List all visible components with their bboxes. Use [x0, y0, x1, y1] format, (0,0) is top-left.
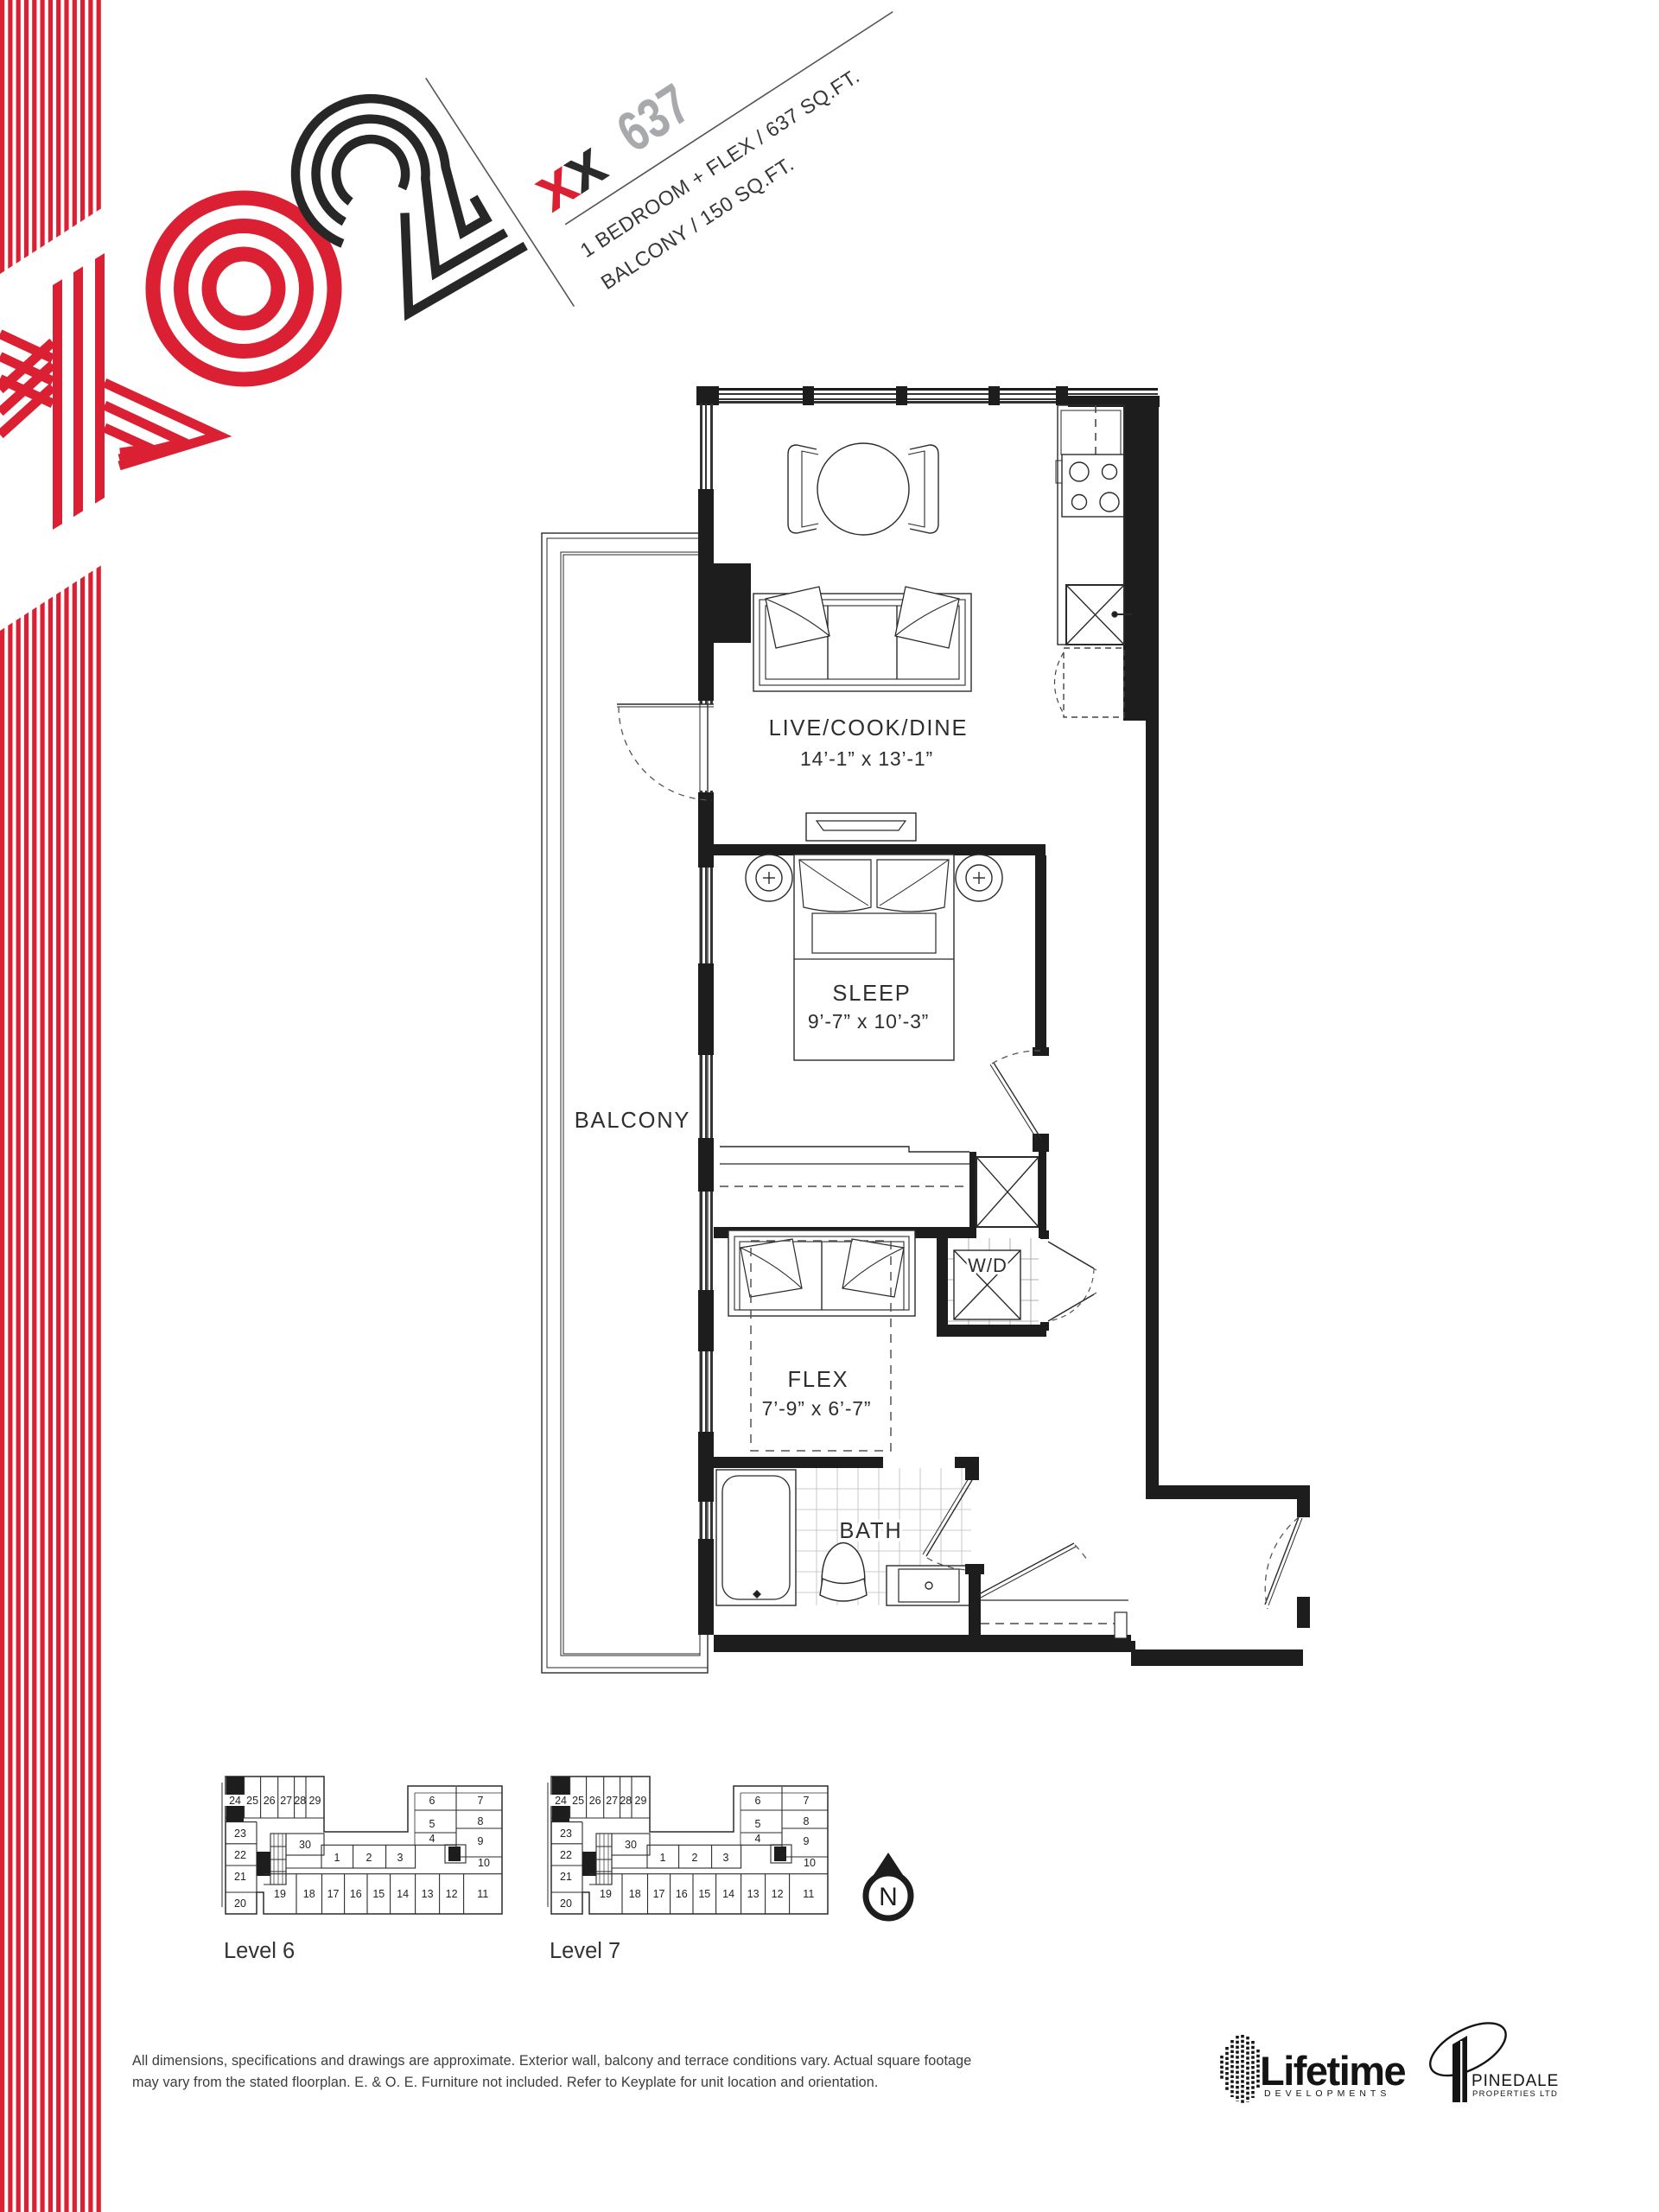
svg-text:30: 30: [299, 1839, 311, 1851]
svg-text:5: 5: [755, 1818, 761, 1830]
svg-text:may vary from the stated floor: may vary from the stated floorplan. E. &…: [132, 2075, 879, 2090]
svg-text:10: 10: [478, 1857, 490, 1869]
svg-text:30: 30: [625, 1839, 637, 1851]
svg-text:13: 13: [422, 1888, 434, 1900]
svg-text:14’-1” x 13’-1”: 14’-1” x 13’-1”: [800, 747, 933, 770]
svg-text:17: 17: [653, 1888, 665, 1900]
svg-text:28: 28: [620, 1795, 632, 1807]
svg-text:9: 9: [804, 1835, 810, 1847]
svg-text:23: 23: [560, 1827, 572, 1840]
svg-text:14: 14: [722, 1888, 734, 1900]
svg-text:21: 21: [234, 1871, 246, 1883]
svg-text:BATH: BATH: [839, 1519, 902, 1543]
svg-text:LIVE/COOK/DINE: LIVE/COOK/DINE: [769, 716, 969, 741]
svg-text:29: 29: [635, 1795, 647, 1807]
svg-text:18: 18: [629, 1888, 641, 1900]
svg-text:3: 3: [397, 1852, 404, 1864]
svg-text:20: 20: [560, 1897, 572, 1910]
svg-text:All dimensions, specifications: All dimensions, specifications and drawi…: [132, 2053, 971, 2069]
svg-text:19: 19: [600, 1888, 612, 1900]
svg-text:PINEDALE: PINEDALE: [1471, 2072, 1559, 2090]
svg-text:28: 28: [294, 1795, 306, 1807]
svg-text:8: 8: [478, 1815, 484, 1827]
svg-text:24: 24: [229, 1795, 241, 1807]
svg-text:25: 25: [572, 1795, 584, 1807]
svg-text:17: 17: [327, 1888, 340, 1900]
svg-text:14: 14: [397, 1888, 409, 1900]
svg-text:2: 2: [692, 1852, 698, 1864]
svg-text:12: 12: [772, 1888, 784, 1900]
svg-text:5: 5: [429, 1818, 435, 1830]
svg-text:N: N: [879, 1883, 898, 1911]
svg-text:9’-7” x 10’-3”: 9’-7” x 10’-3”: [808, 1010, 929, 1033]
svg-text:Level 6: Level 6: [224, 1939, 295, 1963]
svg-text:4: 4: [755, 1833, 761, 1845]
svg-text:SLEEP: SLEEP: [832, 982, 911, 1006]
svg-text:21: 21: [560, 1871, 572, 1883]
svg-text:20: 20: [234, 1897, 246, 1910]
svg-text:4: 4: [429, 1833, 435, 1845]
svg-text:11: 11: [477, 1888, 488, 1900]
svg-text:DEVELOPMENTS: DEVELOPMENTS: [1264, 2088, 1390, 2099]
svg-text:1: 1: [334, 1852, 340, 1864]
svg-text:13: 13: [747, 1888, 760, 1900]
svg-text:26: 26: [264, 1795, 276, 1807]
svg-text:29: 29: [309, 1795, 321, 1807]
svg-text:9: 9: [478, 1835, 484, 1847]
svg-text:7’-9” x 6’-7”: 7’-9” x 6’-7”: [762, 1397, 872, 1420]
svg-text:7: 7: [478, 1795, 484, 1807]
svg-text:16: 16: [350, 1888, 362, 1900]
svg-text:8: 8: [804, 1815, 810, 1827]
svg-text:22: 22: [560, 1849, 572, 1861]
svg-text:27: 27: [606, 1795, 618, 1807]
svg-text:15: 15: [372, 1888, 385, 1900]
svg-text:16: 16: [676, 1888, 688, 1900]
svg-text:Lifetime: Lifetime: [1260, 2048, 1406, 2094]
svg-text:2: 2: [366, 1852, 372, 1864]
svg-text:Level 7: Level 7: [550, 1939, 620, 1963]
svg-text:15: 15: [698, 1888, 710, 1900]
svg-text:W/D: W/D: [968, 1255, 1007, 1276]
svg-text:22: 22: [234, 1849, 246, 1861]
svg-text:7: 7: [804, 1795, 810, 1807]
svg-text:19: 19: [274, 1888, 286, 1900]
svg-text:18: 18: [303, 1888, 315, 1900]
svg-text:FLEX: FLEX: [788, 1368, 849, 1392]
svg-text:PROPERTIES LTD: PROPERTIES LTD: [1472, 2089, 1558, 2099]
svg-text:23: 23: [234, 1827, 246, 1840]
svg-text:25: 25: [246, 1795, 258, 1807]
svg-text:BALCONY: BALCONY: [575, 1109, 690, 1133]
svg-text:1: 1: [660, 1852, 666, 1864]
svg-text:27: 27: [280, 1795, 292, 1807]
svg-text:6: 6: [755, 1795, 761, 1807]
svg-text:26: 26: [589, 1795, 601, 1807]
svg-text:3: 3: [723, 1852, 729, 1864]
svg-text:12: 12: [446, 1888, 458, 1900]
svg-text:24: 24: [555, 1795, 567, 1807]
svg-text:10: 10: [804, 1857, 816, 1869]
svg-text:11: 11: [803, 1888, 814, 1900]
svg-text:6: 6: [429, 1795, 435, 1807]
